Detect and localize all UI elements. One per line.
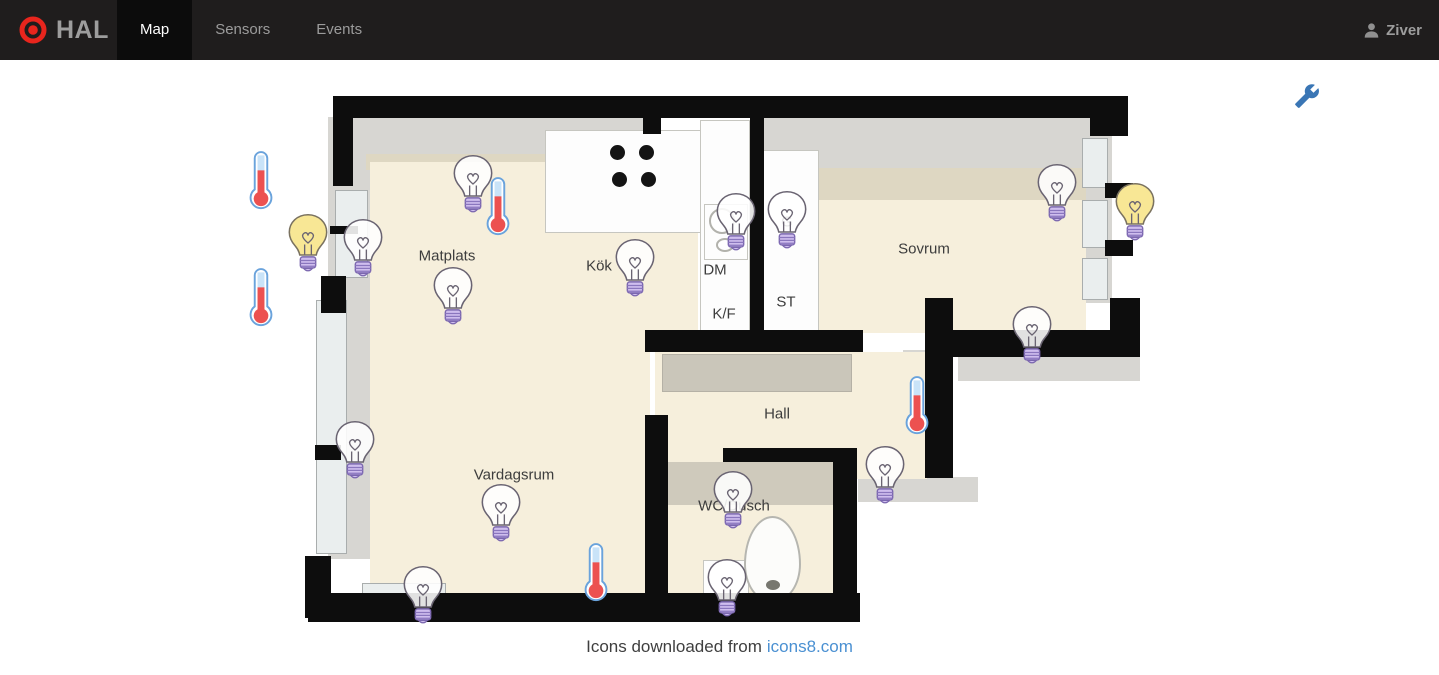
window-pane [1082, 138, 1108, 188]
light-bulb-icon[interactable] [332, 419, 378, 481]
thermometer-icon[interactable] [904, 375, 931, 435]
floor-plan: MatplatsKökSovrumHallVardagsrumWC/DuschD… [0, 0, 1439, 675]
icons-credit: Icons downloaded fromicons8.com [0, 637, 1439, 657]
light-bulb-icon[interactable] [710, 469, 756, 531]
stove-burner [639, 145, 654, 160]
room-label: Kök [586, 258, 612, 275]
light-bulb-icon[interactable] [340, 217, 386, 279]
wall-segment [1090, 96, 1128, 136]
light-bulb-icon[interactable] [1009, 304, 1055, 366]
room-label: Hall [764, 406, 790, 423]
hal-logo-icon [18, 15, 48, 45]
light-bulb-icon[interactable] [862, 444, 908, 506]
wall-segment [1110, 298, 1140, 357]
thermometer-icon[interactable] [485, 176, 512, 236]
room-label: K/F [712, 306, 735, 323]
wall-segment [645, 330, 863, 352]
brand-title: HAL [56, 16, 109, 45]
nav-tabs: Map Sensors Events [117, 0, 385, 60]
light-bulb-icon[interactable] [478, 482, 524, 544]
user-icon [1363, 22, 1380, 39]
user-menu[interactable]: Ziver [1363, 0, 1422, 60]
wall-segment [833, 455, 857, 617]
light-bulb-icon[interactable] [1112, 181, 1158, 243]
wall-segment [645, 415, 668, 615]
map-settings-wrench-button[interactable] [1294, 83, 1320, 109]
thermometer-icon[interactable] [583, 542, 610, 602]
light-bulb-icon[interactable] [713, 191, 759, 253]
thermometer-icon[interactable] [248, 150, 275, 210]
wall-segment [333, 96, 1128, 118]
icons8-link[interactable]: icons8.com [767, 637, 853, 656]
wall-segment [643, 115, 661, 134]
room-label: Matplats [419, 248, 476, 265]
hal-app-window: MatplatsKökSovrumHallVardagsrumWC/DuschD… [0, 0, 1439, 675]
window-pane [1082, 258, 1108, 300]
light-bulb-icon[interactable] [430, 265, 476, 327]
light-bulb-icon[interactable] [612, 237, 658, 299]
wrench-icon [1294, 83, 1320, 109]
light-bulb-icon[interactable] [704, 557, 750, 619]
toilet-lid-button [766, 580, 780, 590]
light-bulb-icon[interactable] [285, 212, 331, 274]
stove-burner [610, 145, 625, 160]
tab-events[interactable]: Events [293, 0, 385, 60]
user-name: Ziver [1386, 22, 1422, 39]
hall-wardrobe [662, 354, 852, 392]
thermometer-icon[interactable] [248, 267, 275, 327]
stove-burner [641, 172, 656, 187]
room-label: ST [776, 294, 795, 311]
light-bulb-icon[interactable] [400, 564, 446, 626]
room-label: DM [703, 262, 726, 279]
brand-home-link[interactable]: HAL [18, 0, 109, 60]
top-navbar: HAL Map Sensors Events Ziver [0, 0, 1439, 60]
credit-text: Icons downloaded from [586, 637, 762, 656]
tab-map[interactable]: Map [117, 0, 192, 60]
room-label: Sovrum [898, 241, 950, 258]
wall-segment [333, 96, 353, 186]
light-bulb-icon[interactable] [1034, 162, 1080, 224]
stove-burner [612, 172, 627, 187]
light-bulb-icon[interactable] [764, 189, 810, 251]
room-label: Vardagsrum [474, 467, 555, 484]
wall-segment [321, 276, 346, 313]
tab-sensors[interactable]: Sensors [192, 0, 293, 60]
